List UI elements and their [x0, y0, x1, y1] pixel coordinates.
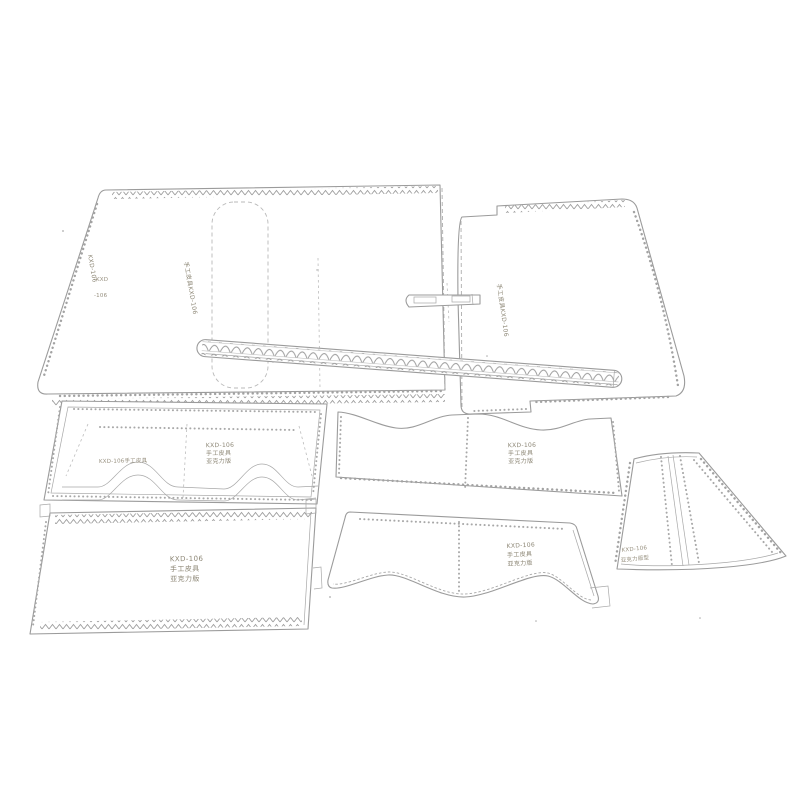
piece-label: 手工皮具 [206, 449, 231, 457]
piece-divider-panel: KXD-106 手工皮具 亚克力版 [336, 412, 622, 496]
product-photo: KXD-106 KXD -106 手工皮具KXD-106 手工皮具KXD-106 [0, 0, 800, 800]
piece-label: -106 [94, 293, 108, 299]
piece-label: 亚克力版 [206, 457, 231, 465]
piece-label: KXD-106 [170, 555, 204, 564]
piece-main-body: KXD-106 KXD -106 手工皮具KXD-106 [38, 185, 445, 407]
piece-label: KXD [96, 277, 108, 283]
piece-back-panel: KXD-106 手工皮具 亚克力版 [30, 499, 322, 634]
piece-label: 手工皮具 [170, 564, 200, 574]
piece-label: 亚克力版 [508, 457, 533, 465]
edge-bracket [313, 567, 322, 589]
piece-label: 手工皮具 [508, 449, 533, 457]
piece-gusset: KXD-106 亚克力版型 [615, 453, 786, 570]
piece-label: KXD-106 [508, 442, 537, 449]
piece-label: KXD-106 [506, 541, 535, 549]
alignment-tab [40, 504, 50, 517]
piece-label: 亚克力版 [170, 574, 200, 584]
template-set-illustration: KXD-106 KXD -106 手工皮具KXD-106 手工皮具KXD-106 [0, 0, 800, 800]
piece-label: 手工皮具 [507, 550, 533, 559]
piece-pocket-panel: KXD-106手工皮具 KXD-106 手工皮具 亚克力版 [44, 401, 327, 504]
piece-label: KXD-106 [206, 442, 235, 449]
piece-front-panel: KXD-106 手工皮具 亚克力版 [328, 512, 610, 608]
piece-label: 亚克力版 [507, 559, 533, 568]
